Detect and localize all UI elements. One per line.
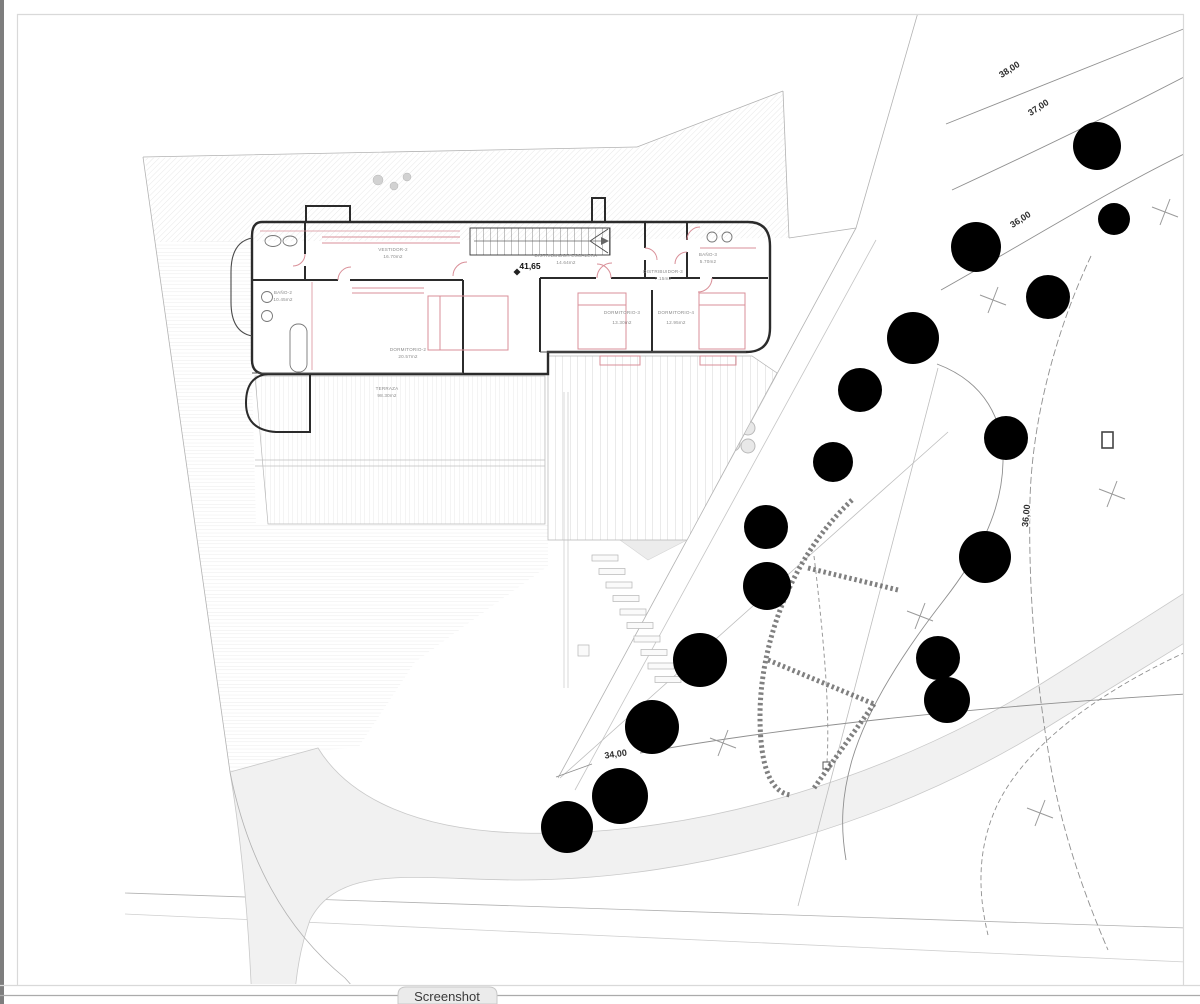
survey-cross-icon (1027, 800, 1053, 826)
room-label: DISTRIBUIDOR ESCALERA (535, 253, 599, 258)
drawing-area: 41,65 VESTIDOR-2 16.70m2 BAÑO-2 10.45m2 … (125, 2, 1186, 1004)
terrain-hatch-band (145, 92, 789, 242)
staircase (470, 228, 610, 255)
room-label: VESTIDOR-2 (378, 247, 408, 252)
tree-icon (916, 636, 960, 680)
contour-38 (946, 28, 1186, 124)
contour-label: 36,00 (1008, 209, 1032, 230)
room-label: TERRAZA (376, 386, 400, 391)
room-label: BAÑO-2 (274, 289, 293, 295)
tree-icon (959, 531, 1011, 583)
room-label: DORMITORIO-3 (604, 310, 641, 315)
survey-cross-icon (1099, 481, 1125, 507)
tree-icon (1098, 203, 1130, 235)
contour-label: 34,00 (604, 748, 628, 761)
tree-icon (813, 442, 853, 482)
tree-icon (592, 768, 648, 824)
stone-walls (760, 500, 898, 795)
room-area: 20.57m2 (398, 354, 418, 359)
room-label: DISTRIBUIDOR-3 (643, 269, 683, 274)
tree-icon (1073, 122, 1121, 170)
room-area: 10.45m2 (273, 297, 293, 302)
tree-icon (1026, 275, 1070, 319)
tree-icon (951, 222, 1001, 272)
survey-cross-icon (907, 603, 933, 629)
room-area: 16.70m2 (383, 254, 403, 259)
room-area: 12.95m2 (666, 320, 686, 325)
contour-label: 38,00 (997, 59, 1021, 80)
tree-icon (887, 312, 939, 364)
survey-cross-icon (1152, 199, 1178, 225)
tree-icon (744, 505, 788, 549)
screenshot-tab-label[interactable]: Screenshot (414, 989, 480, 1004)
room-label: BAÑO-3 (699, 251, 718, 257)
level-value: 41,65 (519, 261, 541, 271)
contour-label: 36,00 (1020, 504, 1032, 527)
site-plan-canvas: 41,65 VESTIDOR-2 16.70m2 BAÑO-2 10.45m2 … (0, 0, 1200, 1004)
tree-icon (838, 368, 882, 412)
terrace-deck (255, 376, 545, 524)
contour-36-lower (1030, 256, 1108, 950)
tree-icon (743, 562, 791, 610)
screenshot-viewer: 41,65 VESTIDOR-2 16.70m2 BAÑO-2 10.45m2 … (0, 0, 1200, 1004)
room-area: 13.30m2 (612, 320, 632, 325)
contour-label: 37,00 (1026, 97, 1050, 118)
path-trace (814, 556, 830, 769)
screenshot-tab[interactable]: Screenshot (398, 987, 497, 1004)
room-label: DORMITORIO-4 (658, 310, 695, 315)
left-edge-strip (0, 0, 4, 1004)
survey-cross-icon (980, 287, 1006, 313)
tree-icon (625, 700, 679, 754)
room-area: 7.15m2 (655, 276, 672, 281)
tree-icon (984, 416, 1028, 460)
room-label: DORMITORIO-2 (390, 347, 427, 352)
survey-cross-icon (710, 730, 736, 756)
level-marker: 41,65 (513, 261, 540, 276)
contour-37 (952, 76, 1186, 190)
tree-icon (541, 801, 593, 853)
utility-box (1102, 432, 1113, 448)
tree-icon (673, 633, 727, 687)
room-area: 98.30m2 (377, 393, 397, 398)
room-area: 14.64m2 (556, 260, 576, 265)
room-area: 5.70m2 (700, 259, 717, 264)
tree-icon (924, 677, 970, 723)
